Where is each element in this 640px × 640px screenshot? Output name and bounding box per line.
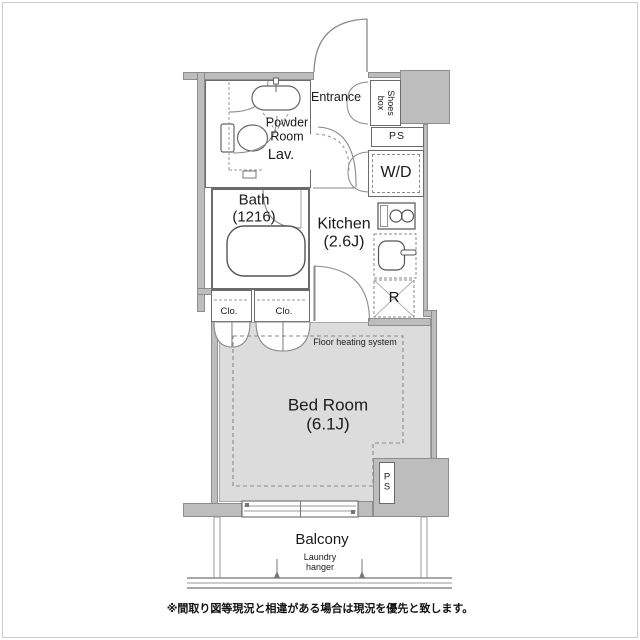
wall-top-right [368, 72, 402, 78]
entrance-label: Entrance [311, 91, 361, 105]
bath-label: Bath (1216) [232, 193, 275, 226]
powder-room-label: Powder Room [266, 116, 308, 144]
closet-left-label: Clo. [221, 307, 238, 317]
floor-heating-label: Floor heating system [313, 338, 397, 348]
wall-block-top-right [400, 70, 450, 124]
wall-left-upper [197, 72, 205, 312]
washer-dryer-label: W/D [380, 164, 411, 182]
kitchen-label: Kitchen (2.6J) [317, 215, 370, 250]
refrigerator-label: R [389, 290, 400, 307]
wall-right-lower [431, 310, 437, 462]
ps-upper-label: PS [389, 131, 405, 143]
laundry-hanger-label: Laundry hanger [304, 553, 337, 573]
lavatory-label: Lav. [268, 148, 294, 164]
pipe-space-label: P S [384, 473, 390, 494]
floorplan-canvas: Entrance Shoes box PS W/D Powder Room La… [0, 0, 640, 640]
bedroom-label: Bed Room (6.1J) [288, 396, 368, 433]
wall-kitchen-bottom [368, 318, 431, 326]
wall-top [197, 72, 314, 80]
wall-bottom-mid [356, 501, 373, 517]
disclaimer-note: ※間取り図等現況と相違がある場合は現況を優先と致します。 [167, 600, 474, 616]
closet-right-label: Clo. [276, 307, 293, 317]
balcony-label: Balcony [295, 532, 348, 549]
wall-block-bottom-left [183, 503, 242, 517]
shoes-box-label: Shoes box [375, 90, 395, 116]
